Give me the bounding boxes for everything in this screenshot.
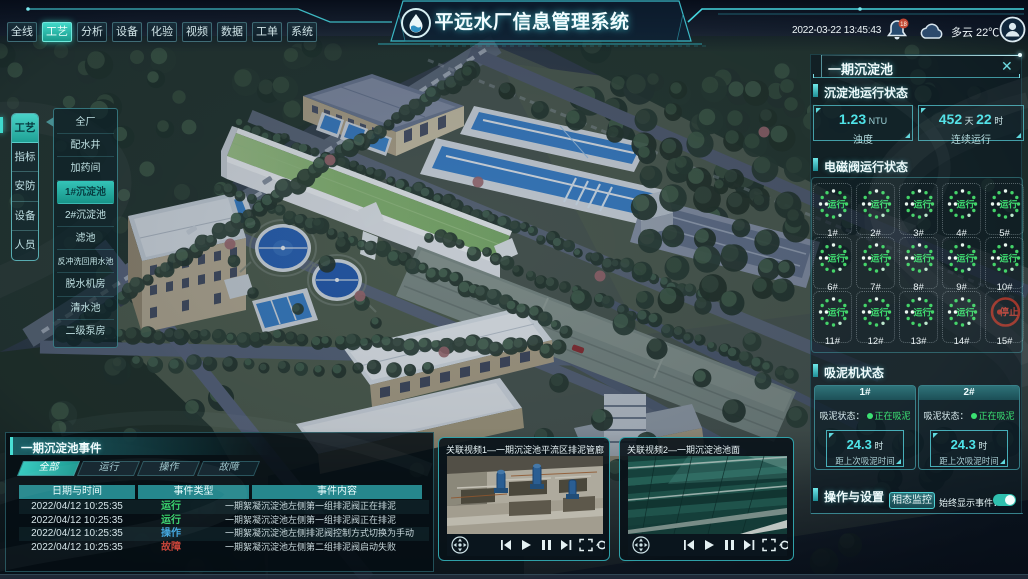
- svg-text:运行: 运行: [913, 198, 931, 209]
- svg-text:运行: 运行: [870, 252, 888, 263]
- svg-text:运行: 运行: [827, 198, 845, 209]
- svg-text:18: 18: [900, 22, 907, 28]
- svg-text:停止: 停止: [999, 307, 1019, 319]
- svg-text:运行: 运行: [870, 306, 888, 317]
- svg-text:运行: 运行: [913, 306, 931, 317]
- svg-text:运行: 运行: [827, 252, 845, 263]
- svg-text:运行: 运行: [956, 198, 974, 209]
- svg-text:运行: 运行: [913, 252, 931, 263]
- svg-text:运行: 运行: [827, 306, 845, 317]
- svg-text:运行: 运行: [999, 198, 1017, 209]
- svg-text:运行: 运行: [999, 252, 1017, 263]
- svg-text:运行: 运行: [956, 252, 974, 263]
- svg-text:运行: 运行: [956, 306, 974, 317]
- svg-text:运行: 运行: [870, 198, 888, 209]
